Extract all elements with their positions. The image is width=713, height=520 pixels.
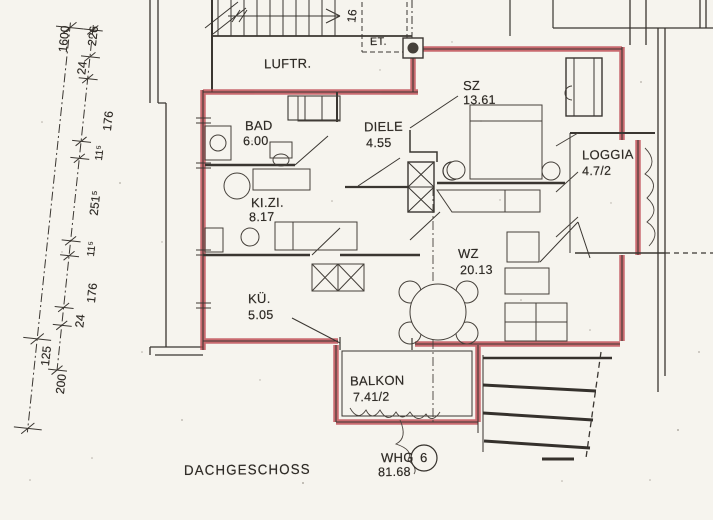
- room-area-balkon: 7.41/2: [353, 391, 390, 404]
- room-area-bad: 6.00: [243, 135, 269, 148]
- dim-segment-0: 226: [86, 25, 100, 46]
- room-label-bad: BAD: [245, 119, 273, 132]
- roof-battens: [478, 355, 612, 459]
- room-area-schlafzimmer: 13.61: [463, 94, 496, 107]
- room-label-schlafzimmer: SZ: [463, 79, 480, 92]
- dim-segment-3: 11⁵: [94, 145, 106, 161]
- room-label-kinderzimmer: KI.ZI.: [251, 196, 284, 210]
- room-area-loggia: 4.7/2: [582, 165, 612, 178]
- plan-linework: [0, 0, 713, 520]
- dim-segment-5: 11⁵: [86, 241, 98, 257]
- floor-plan-scan: 1600 226 24 176 11⁵ 251⁵ 11⁵ 176 24 125 …: [0, 0, 713, 520]
- revision-scribbles: [350, 148, 655, 474]
- unit-number: 6: [420, 451, 428, 464]
- dim-segment-4: 251⁵: [88, 190, 103, 216]
- room-label-wohnzimmer: WZ: [458, 247, 479, 260]
- room-label-loggia: LOGGIA: [582, 148, 634, 162]
- dim-segment-6: 176: [85, 282, 99, 303]
- room-label-luftraum: LUFTR.: [264, 57, 312, 71]
- stair-treads: [205, 0, 335, 36]
- outer-edges: [150, 0, 713, 458]
- room-label-entree: ET.: [370, 37, 387, 48]
- dim-segment-2: 176: [101, 110, 115, 131]
- room-label-kueche: KÜ.: [248, 292, 271, 305]
- interior-walls: [203, 58, 665, 416]
- stair-post: [403, 38, 423, 58]
- room-label-diele: DIELE: [364, 120, 403, 134]
- dim-segment-8: 125: [39, 345, 53, 366]
- room-area-kinderzimmer: 8.17: [249, 211, 275, 224]
- dim-overall: 1600: [57, 25, 72, 53]
- room-label-balkon: BALKON: [350, 374, 405, 388]
- room-area-diele: 4.55: [366, 137, 392, 150]
- room-area-kueche: 5.05: [248, 309, 274, 322]
- floor-title: DACHGESCHOSS: [184, 462, 311, 477]
- paper-speckle: [29, 41, 700, 484]
- unit-prefix: WHG: [381, 451, 414, 465]
- highlighted-walls: [196, 47, 638, 422]
- unit-total-area: 81.68: [378, 466, 411, 479]
- dim-below: 200: [54, 373, 68, 394]
- stair-step-count: 16: [345, 9, 358, 24]
- dim-segment-7: 24: [73, 314, 86, 329]
- dim-segment-1: 24: [75, 61, 88, 76]
- room-area-wohnzimmer: 20.13: [460, 264, 493, 277]
- stair-direction-arrow: [228, 9, 340, 23]
